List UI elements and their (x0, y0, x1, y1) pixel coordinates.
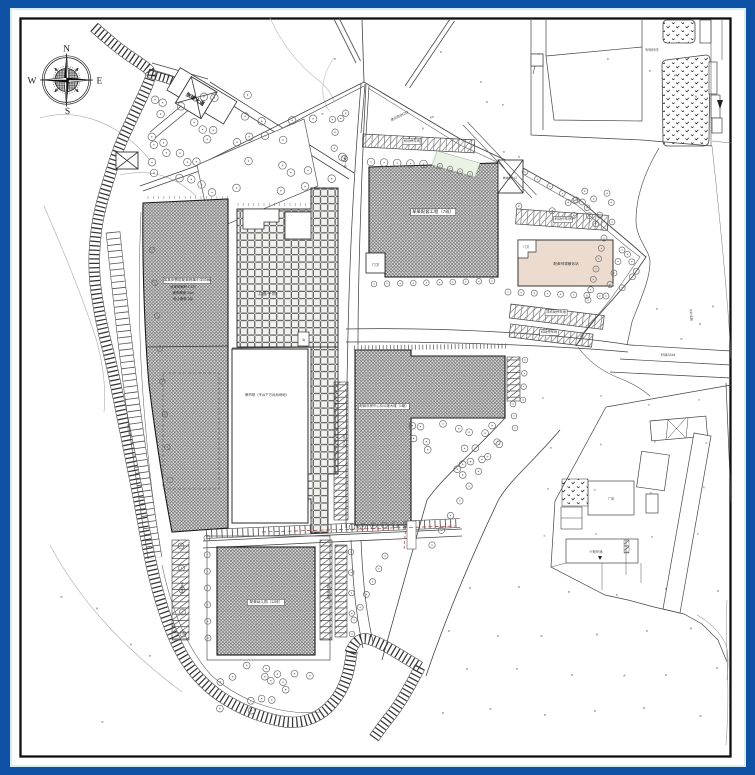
svg-text:非机动停车场: 非机动停车场 (546, 310, 566, 314)
svg-text:村道S344: 村道S344 (661, 353, 676, 357)
svg-text:S: S (65, 107, 70, 117)
svg-text:坡道出入口: 坡道出入口 (503, 176, 518, 180)
svg-text:门卫: 门卫 (523, 245, 530, 249)
svg-text:厂房: 厂房 (608, 497, 614, 501)
svg-text:门卫: 门卫 (372, 262, 380, 267)
svg-text:非机动车: 非机动车 (180, 582, 184, 594)
svg-text:规划一路: 规划一路 (343, 156, 347, 168)
svg-text:消防车道: 消防车道 (342, 434, 346, 446)
svg-text:现状村庄: 现状村庄 (645, 48, 659, 52)
svg-text:兴旺织造: 兴旺织造 (589, 550, 603, 554)
svg-text:N: N (63, 45, 70, 55)
svg-text:机动停车场: 机动停车场 (555, 217, 573, 221)
svg-text:机动停车场: 机动停车场 (404, 139, 420, 143)
svg-text:W: W (28, 77, 37, 87)
svg-text:总建筑面积 1.5万: 总建筑面积 1.5万 (170, 285, 197, 289)
svg-text:机动停车场: 机动停车场 (541, 330, 558, 334)
svg-text:地上建筑 2层: 地上建筑 2层 (173, 297, 193, 301)
svg-text:临时停车场: 临时停车场 (326, 584, 330, 599)
svg-text:图书馆（平台下方运动场地）: 图书馆（平台下方运动场地） (245, 393, 289, 397)
svg-text:配套幼儿园（12班）: 配套幼儿园（12班） (250, 599, 283, 604)
svg-text:配套邻里服务站: 配套邻里服务站 (553, 261, 579, 266)
svg-text:上盖平台: 上盖平台 (258, 291, 277, 296)
svg-text:E: E (97, 77, 103, 87)
svg-text:消: 消 (302, 338, 305, 342)
svg-text:某某安置区配套附属中学项目: 某某安置区配套附属中学项目 (164, 277, 211, 282)
svg-text:配套邻里中心及公建大楼（1期）: 配套邻里中心及公建大楼（1期） (359, 404, 408, 408)
svg-text:建筑高度 24m: 建筑高度 24m (172, 291, 193, 295)
svg-text:某某配套工程（7班）: 某某配套工程（7班） (412, 209, 454, 214)
